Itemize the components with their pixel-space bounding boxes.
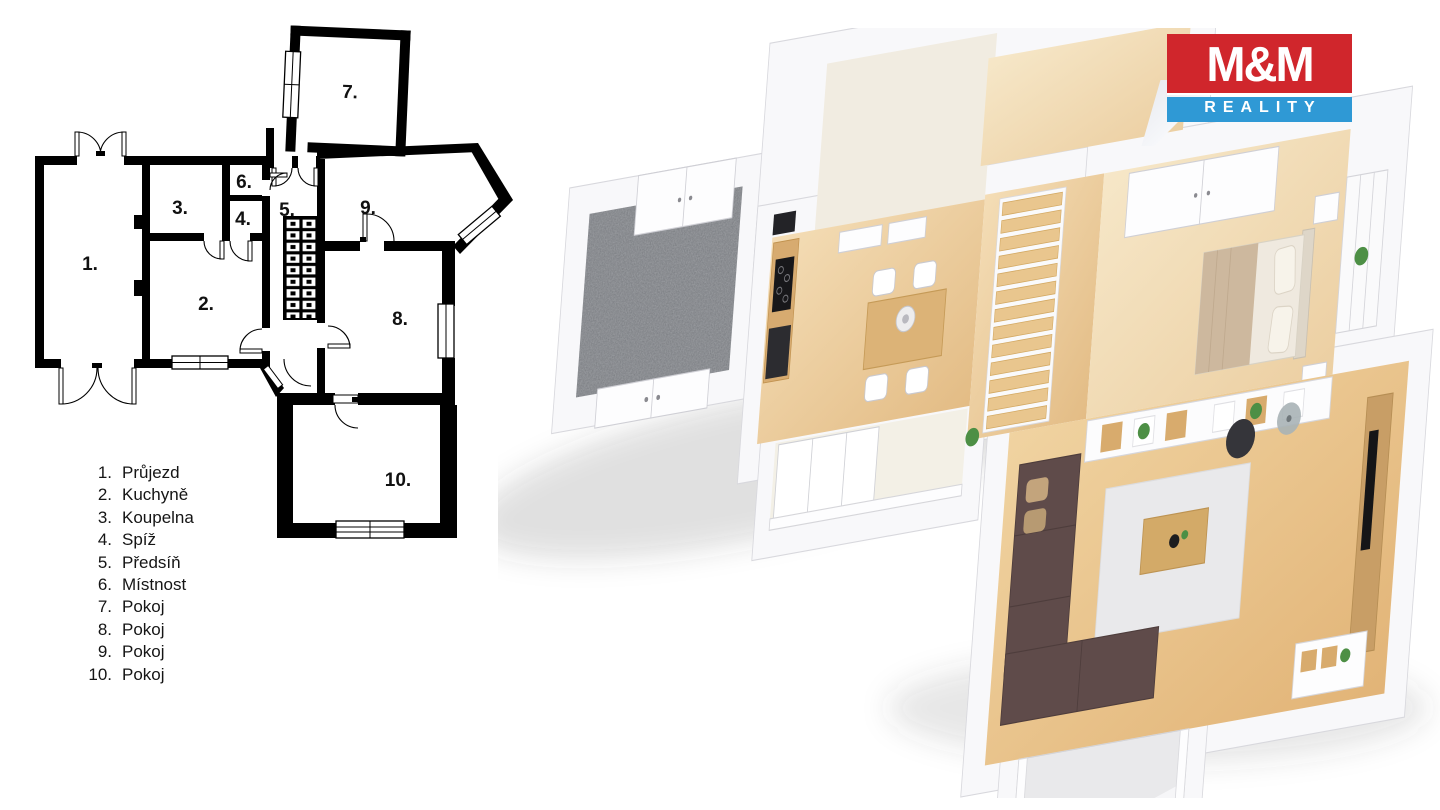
logo-title: M&M: [1206, 35, 1312, 93]
legend-number: 1.: [78, 462, 118, 484]
logo-red-box: M&M: [1167, 34, 1352, 93]
legend-number: 4.: [78, 529, 118, 551]
svg-text:8.: 8.: [392, 309, 408, 330]
svg-text:9.: 9.: [360, 198, 376, 219]
svg-text:4.: 4.: [235, 209, 251, 230]
legend-number: 6.: [78, 574, 118, 596]
coffee-table: [1140, 508, 1209, 575]
legend-item: 2.Kuchyně: [78, 484, 298, 506]
room-7-walls: 7.: [281, 25, 410, 156]
logo-blue-band: REALITY: [1167, 93, 1352, 120]
room-label-7: 7.: [342, 82, 359, 104]
legend-number: 9.: [78, 641, 118, 663]
svg-text:1.: 1.: [82, 254, 98, 275]
room-legend: 1.Průjezd 2.Kuchyně 3.Koupelna 4.Spíž 5.…: [78, 462, 298, 686]
legend-item: 3.Koupelna: [78, 507, 298, 529]
legend-number: 7.: [78, 596, 118, 618]
svg-text:2.: 2.: [198, 294, 214, 315]
legend-label: Koupelna: [122, 507, 298, 529]
legend-item: 5.Předsíň: [78, 552, 298, 574]
legend-label: Kuchyně: [122, 484, 298, 506]
nightstand: [1313, 192, 1339, 224]
floorplan-3d: [498, 28, 1440, 798]
legend-label: Spíž: [122, 529, 298, 551]
legend-number: 8.: [78, 619, 118, 641]
legend-item: 4.Spíž: [78, 529, 298, 551]
window-room7: [283, 51, 301, 118]
legend-item: 6.Místnost: [78, 574, 298, 596]
legend-label: Místnost: [122, 574, 298, 596]
staircase-2d: [285, 218, 317, 318]
svg-text:5.: 5.: [279, 200, 295, 221]
legend-item: 8.Pokoj: [78, 619, 298, 641]
legend-item: 10.Pokoj: [78, 664, 298, 686]
svg-text:3.: 3.: [172, 198, 188, 219]
legend-item: 7.Pokoj: [78, 596, 298, 618]
legend-label: Předsíň: [122, 552, 298, 574]
range-hood: [773, 211, 797, 236]
pillow: [1274, 244, 1295, 295]
legend-number: 2.: [78, 484, 118, 506]
legend-number: 10.: [78, 664, 118, 686]
hallway: [965, 173, 1104, 447]
legend-number: 5.: [78, 552, 118, 574]
legend-number: 3.: [78, 507, 118, 529]
legend-label: Pokoj: [122, 596, 298, 618]
legend-label: Pokoj: [122, 619, 298, 641]
real-estate-floorplan-page: 7.: [0, 0, 1440, 810]
legend-item: 1.Průjezd: [78, 462, 298, 484]
room-labels-2d: 1. 2. 3. 4. 5. 6. 8. 9. 10.: [82, 172, 411, 491]
svg-text:6.: 6.: [236, 172, 252, 193]
legend-label: Pokoj: [122, 664, 298, 686]
legend-label: Pokoj: [122, 641, 298, 663]
legend-item: 9.Pokoj: [78, 641, 298, 663]
mm-reality-logo: M&M REALITY: [1167, 34, 1352, 120]
svg-text:10.: 10.: [385, 470, 411, 491]
logo-subtitle: REALITY: [1197, 99, 1321, 117]
legend-label: Průjezd: [122, 462, 298, 484]
